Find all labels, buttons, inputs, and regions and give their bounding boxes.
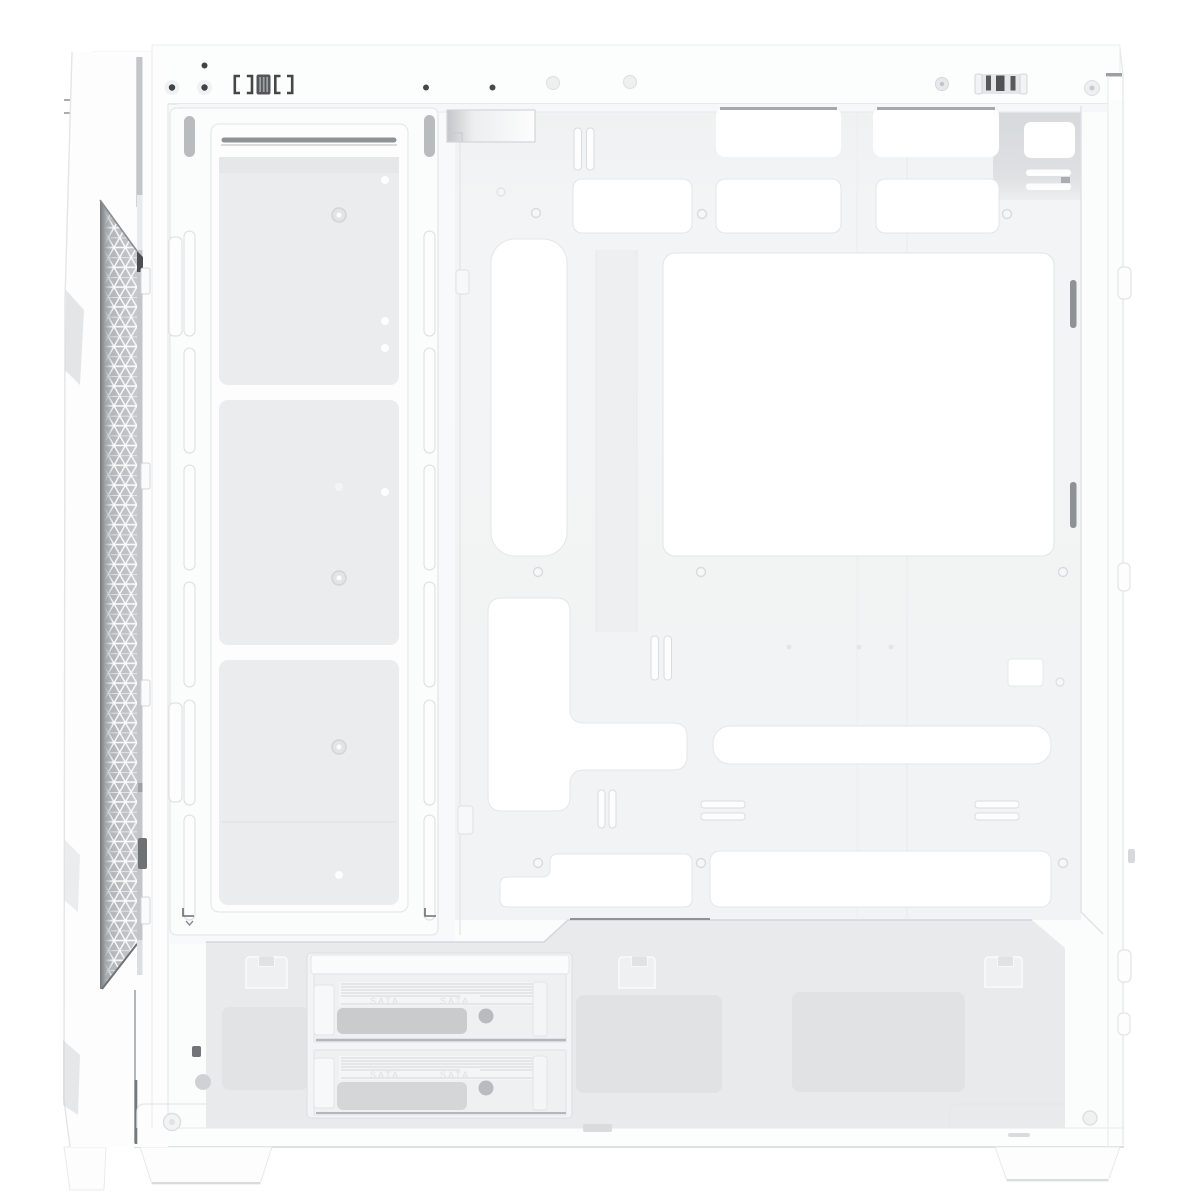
svg-text:SATA: SATA [440, 996, 470, 1006]
svg-text:SATA: SATA [370, 996, 400, 1006]
svg-text:SATA: SATA [370, 1070, 400, 1080]
svg-text:SATA: SATA [440, 1070, 470, 1080]
